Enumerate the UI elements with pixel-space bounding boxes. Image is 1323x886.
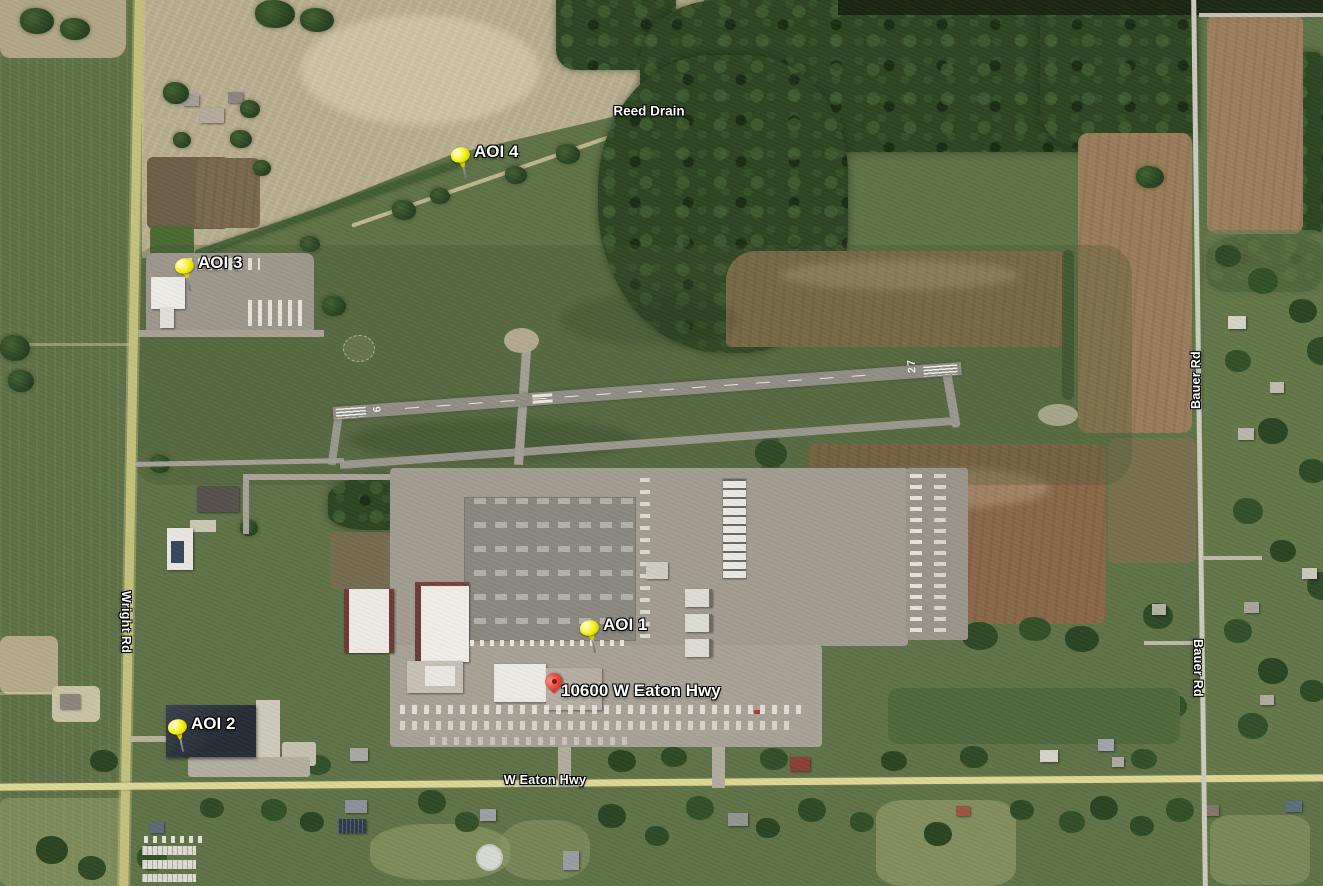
hangar-white	[344, 589, 394, 653]
tree-scatter-south	[200, 798, 224, 818]
placemark-address[interactable]: 10600 W Eaton Hwy	[544, 672, 564, 702]
satellite-map-canvas[interactable]: 9 27	[0, 0, 1323, 886]
house	[1285, 801, 1302, 812]
farm-pad	[190, 520, 216, 532]
house	[345, 800, 367, 813]
tree-clump	[505, 166, 527, 184]
field-mottle	[876, 800, 1016, 886]
road-label-bauer-rd-north: Bauer Rd	[1189, 351, 1203, 409]
garden-plot	[196, 158, 260, 228]
driveway	[140, 118, 184, 123]
tree-clump	[430, 188, 450, 204]
red-car	[754, 710, 760, 714]
tree-clump	[1136, 166, 1164, 188]
shed	[563, 851, 579, 870]
long-storage-building	[722, 478, 747, 580]
tree-clump	[240, 100, 260, 118]
road-label-wright-rd: Wright Rd	[119, 591, 133, 653]
placemark-label[interactable]: AOI 4	[474, 142, 518, 162]
placemark-label[interactable]: 10600 W Eaton Hwy	[561, 681, 721, 701]
aoi2-concrete-strip	[256, 700, 280, 762]
parked-cars-row	[430, 737, 630, 745]
house	[200, 108, 224, 123]
driveway-bauer-west	[1144, 641, 1198, 645]
field-boundary-line	[0, 692, 52, 695]
shed	[646, 562, 668, 579]
house	[728, 813, 748, 826]
house	[1040, 750, 1058, 762]
tree-clump	[300, 8, 334, 32]
house	[1098, 739, 1114, 751]
house	[1302, 568, 1317, 579]
compass-circle	[343, 335, 375, 362]
parked-cars-row	[400, 705, 808, 714]
placemark-aoi-2[interactable]: AOI 2	[167, 721, 193, 755]
farm-shed-blue-roof	[171, 541, 184, 563]
hedgerow-trees	[755, 440, 787, 467]
storage-unit-row	[142, 874, 196, 882]
tree-clump	[173, 132, 191, 148]
tree-clump	[20, 8, 54, 34]
storage-unit-row	[142, 846, 196, 855]
farm-shed-dark	[197, 486, 239, 512]
driveway-bauer-east	[1202, 556, 1262, 560]
complex-north-road-stub	[243, 474, 249, 534]
trailer-row	[934, 474, 946, 632]
field-pale-streak	[300, 15, 540, 125]
road-label-bauer-rd-south: Bauer Rd	[1191, 639, 1205, 697]
runway-number-west: 9	[370, 406, 382, 414]
house	[956, 806, 970, 816]
map-pin-dot-icon	[552, 679, 557, 684]
shed	[685, 589, 712, 607]
storage-unit-row	[142, 860, 196, 869]
tree-clump	[392, 200, 416, 220]
field-mottle	[1210, 815, 1310, 885]
field-brown-ne	[1207, 14, 1303, 234]
truckstop-access-road	[138, 330, 324, 337]
house	[1270, 382, 1284, 393]
pool-circle	[476, 844, 503, 871]
grass-dark-patch	[560, 295, 740, 345]
tree-clump	[230, 130, 252, 148]
building-southwest-white	[425, 666, 455, 686]
barn	[228, 92, 243, 103]
runway-number-east: 27	[906, 358, 919, 373]
red-barn	[790, 757, 810, 771]
field-west-column	[0, 0, 134, 886]
house	[350, 748, 368, 761]
shed	[685, 614, 712, 632]
road-label-w-eaton-hwy: W Eaton Hwy	[504, 773, 586, 787]
forest	[1040, 0, 1196, 148]
truckstop-building-wing	[160, 308, 174, 328]
residential-east-tint	[1204, 230, 1323, 790]
tree-clump	[255, 0, 295, 28]
helipad-circle	[504, 328, 539, 353]
house	[150, 822, 164, 833]
aoi2-south-lot	[188, 757, 310, 777]
runway-threshold-west	[336, 406, 367, 418]
trailer-row	[910, 474, 922, 632]
office-building-front	[494, 664, 546, 702]
placemark-aoi-3[interactable]: AOI 3	[174, 260, 200, 294]
tree-clump	[322, 296, 346, 316]
shed	[685, 639, 712, 657]
placemark-label[interactable]: AOI 2	[191, 714, 235, 734]
field-mottle	[0, 798, 126, 886]
house	[1152, 604, 1166, 615]
field-west-tan-patch	[0, 636, 58, 694]
road-side-top-right	[1199, 13, 1323, 17]
house	[1260, 695, 1274, 705]
runway-threshold-east	[923, 364, 958, 376]
house	[1112, 757, 1124, 767]
rv-row	[144, 836, 202, 843]
dirt-patch	[330, 532, 390, 590]
tree-clump	[253, 160, 271, 176]
house	[1228, 316, 1246, 329]
field-mottle	[500, 820, 590, 880]
parked-cars-row	[400, 721, 790, 730]
placemark-aoi-4[interactable]: AOI 4	[450, 149, 476, 183]
house-solar-roof	[338, 819, 366, 833]
complex-north-road	[243, 474, 399, 480]
waterway-label-reed-drain: Reed Drain	[613, 104, 684, 119]
house	[1238, 428, 1254, 440]
aoi2-driveway	[130, 736, 168, 742]
tree-clump	[60, 18, 90, 40]
field-crop-dark	[888, 688, 1180, 744]
tree-clump	[163, 82, 189, 104]
runway-aiming-bar	[533, 399, 553, 403]
tree-clump	[0, 335, 30, 361]
tree-clump	[8, 370, 34, 392]
house	[1244, 602, 1259, 613]
tree-clump	[556, 144, 580, 164]
house	[480, 809, 496, 821]
house	[60, 694, 80, 709]
parked-trucks-row	[248, 300, 306, 326]
hangar-white	[415, 582, 469, 662]
placemark-label[interactable]: AOI 3	[198, 253, 242, 273]
trailer-row	[640, 478, 650, 638]
placemark-label[interactable]: AOI 1	[603, 615, 647, 635]
tree-scatter-east	[1215, 245, 1241, 267]
placemark-aoi-1[interactable]: AOI 1	[579, 622, 605, 656]
